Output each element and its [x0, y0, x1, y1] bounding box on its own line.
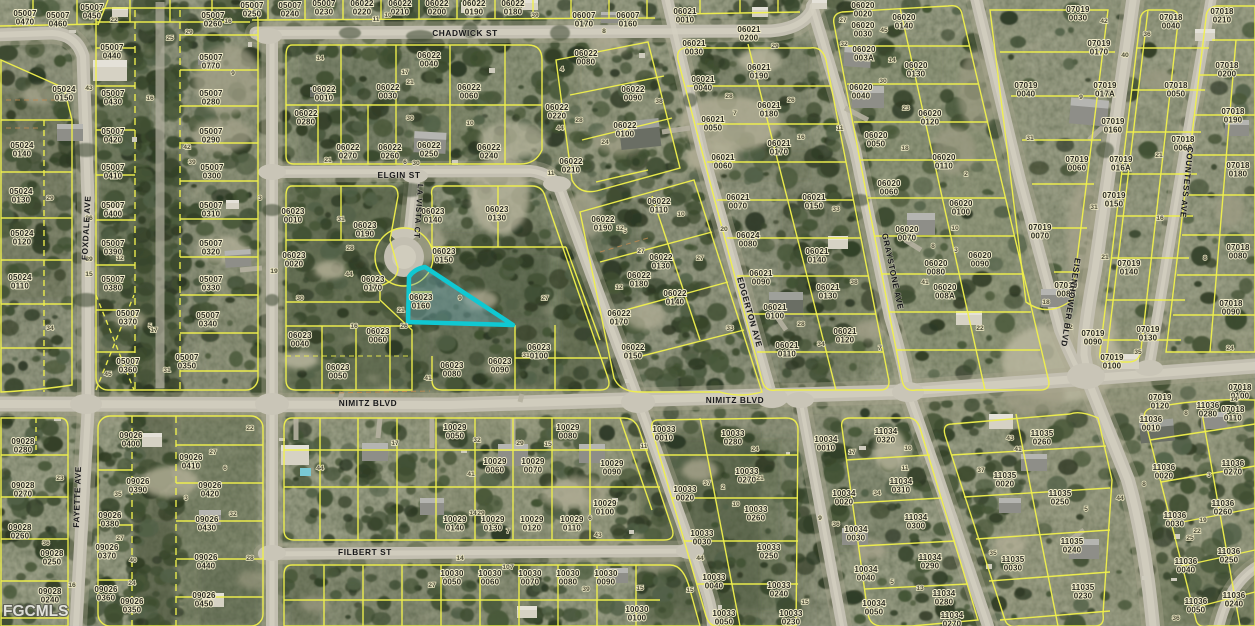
svg-text:27: 27 [541, 295, 549, 302]
svg-text:070180040: 070180040 [1159, 13, 1183, 31]
svg-text:24: 24 [1226, 345, 1234, 352]
svg-text:060220220: 060220220 [350, 0, 374, 17]
svg-text:060210070: 060210070 [726, 193, 750, 211]
svg-text:11: 11 [372, 16, 379, 23]
svg-text:070190160: 070190160 [1101, 117, 1125, 135]
svg-text:100290050: 100290050 [443, 423, 467, 441]
svg-text:25: 25 [166, 35, 174, 42]
svg-text:110350030: 110350030 [1002, 555, 1025, 573]
svg-text:28: 28 [797, 321, 805, 328]
svg-text:100330020: 100330020 [673, 485, 697, 503]
svg-text:06020008A: 06020008A [933, 283, 957, 301]
svg-text:3: 3 [954, 247, 958, 254]
svg-text:070180190: 070180190 [1221, 107, 1245, 125]
svg-text:41: 41 [424, 375, 432, 382]
svg-text:35: 35 [989, 550, 997, 557]
svg-text:090260420: 090260420 [198, 481, 222, 499]
svg-text:060220200: 060220200 [425, 0, 449, 17]
svg-text:40: 40 [129, 557, 137, 564]
svg-text:9: 9 [818, 515, 822, 522]
svg-text:060220180: 060220180 [501, 0, 525, 17]
svg-text:060220250: 060220250 [417, 141, 441, 159]
svg-text:050070430: 050070430 [101, 89, 125, 107]
svg-text:060230170: 060230170 [361, 275, 385, 293]
svg-text:41: 41 [467, 471, 475, 478]
svg-text:34: 34 [873, 490, 881, 497]
svg-text:28: 28 [725, 93, 733, 100]
svg-text:090260430: 090260430 [195, 515, 219, 533]
svg-text:060200140: 060200140 [892, 13, 916, 31]
svg-text:41: 41 [921, 279, 929, 286]
svg-text:6: 6 [223, 465, 227, 472]
svg-text:070190140: 070190140 [1117, 259, 1141, 277]
svg-text:100290060: 100290060 [483, 457, 507, 475]
svg-text:14: 14 [316, 55, 324, 62]
svg-text:050070230: 050070230 [312, 0, 336, 17]
svg-text:15: 15 [85, 271, 93, 278]
svg-text:060200090: 060200090 [968, 251, 992, 269]
svg-text:44: 44 [345, 271, 353, 278]
svg-text:4: 4 [560, 66, 564, 73]
svg-text:060210200: 060210200 [737, 25, 761, 43]
svg-text:7: 7 [506, 528, 510, 535]
svg-text:29: 29 [477, 510, 485, 517]
svg-text:110360030: 110360030 [1164, 511, 1187, 529]
svg-text:060220030: 060220030 [376, 83, 400, 101]
svg-text:5: 5 [890, 579, 894, 586]
svg-text:10: 10 [904, 445, 912, 452]
svg-text:2: 2 [721, 484, 725, 491]
svg-text:45: 45 [880, 27, 888, 34]
svg-text:22: 22 [976, 325, 984, 332]
svg-text:100290100: 100290100 [593, 499, 617, 517]
svg-text:060220270: 060220270 [336, 143, 360, 161]
svg-text:9: 9 [1079, 94, 1083, 101]
svg-text:060220190: 060220190 [462, 0, 486, 17]
svg-text:17: 17 [848, 449, 856, 456]
svg-text:41: 41 [1014, 446, 1022, 453]
svg-text:11: 11 [640, 443, 647, 450]
svg-text:100330280: 100330280 [721, 429, 745, 447]
svg-text:110350230: 110350230 [1072, 583, 1095, 601]
svg-text:39: 39 [531, 12, 539, 19]
svg-text:35: 35 [1134, 349, 1142, 356]
svg-text:110340310: 110340310 [890, 477, 913, 495]
svg-text:110360240: 110360240 [1223, 591, 1246, 609]
svg-text:14: 14 [888, 57, 896, 64]
svg-text:100330040: 100330040 [702, 573, 726, 591]
svg-text:100330240: 100330240 [767, 581, 791, 599]
svg-text:070180080: 070180080 [1226, 243, 1250, 261]
svg-text:060220210: 060220210 [388, 0, 412, 17]
svg-text:5: 5 [1084, 506, 1088, 513]
svg-text:15: 15 [801, 599, 809, 606]
svg-text:22: 22 [110, 17, 118, 24]
svg-text:21: 21 [397, 307, 405, 314]
svg-text:050070250: 050070250 [240, 1, 264, 19]
svg-text:090260450: 090260450 [192, 591, 216, 609]
svg-text:31: 31 [522, 352, 530, 359]
svg-text:100290130: 100290130 [481, 515, 505, 533]
svg-text:060240080: 060240080 [736, 231, 760, 249]
svg-text:050070300: 050070300 [200, 163, 224, 181]
svg-text:36: 36 [1172, 615, 1180, 622]
svg-text:NIMITZ BLVD: NIMITZ BLVD [339, 398, 398, 408]
svg-text:8: 8 [1142, 481, 1146, 488]
svg-text:050070310: 050070310 [199, 201, 223, 219]
svg-text:070180200: 070180200 [1215, 61, 1239, 79]
svg-text:44: 44 [316, 465, 324, 472]
svg-text:11: 11 [901, 465, 908, 472]
svg-text:8: 8 [1203, 255, 1207, 262]
svg-text:050070440: 050070440 [100, 43, 124, 61]
svg-text:33: 33 [832, 206, 840, 213]
svg-text:110360260: 110360260 [1212, 499, 1235, 517]
svg-text:40: 40 [1121, 52, 1129, 59]
svg-text:22: 22 [246, 425, 254, 432]
svg-text:110360040: 110360040 [1175, 557, 1198, 575]
svg-text:070190100: 070190100 [1100, 353, 1124, 371]
svg-text:12: 12 [616, 225, 624, 232]
svg-text:060200020: 060200020 [851, 1, 875, 19]
svg-text:060220010: 060220010 [312, 85, 336, 103]
svg-text:050070410: 050070410 [101, 163, 125, 181]
svg-text:060200050: 060200050 [864, 131, 888, 149]
svg-text:060230020: 060230020 [282, 251, 306, 269]
svg-text:10: 10 [677, 211, 685, 218]
svg-text:060210010: 060210010 [673, 7, 697, 25]
svg-text:10: 10 [466, 120, 474, 127]
svg-text:27: 27 [116, 535, 124, 542]
svg-text:15: 15 [544, 441, 552, 448]
svg-text:060210170: 060210170 [767, 139, 791, 157]
svg-text:FILBERT ST: FILBERT ST [338, 547, 392, 557]
svg-text:9: 9 [458, 295, 462, 302]
svg-text:39: 39 [582, 586, 590, 593]
svg-text:050070400: 050070400 [101, 201, 125, 219]
svg-text:070190150: 070190150 [1102, 191, 1126, 209]
svg-text:070180110: 070180110 [1221, 405, 1245, 423]
svg-text:110350250: 110350250 [1049, 489, 1072, 507]
svg-text:100330260: 100330260 [744, 505, 768, 523]
svg-text:110340300: 110340300 [905, 513, 928, 531]
svg-text:18: 18 [901, 145, 909, 152]
svg-text:060200100: 060200100 [949, 199, 973, 217]
svg-text:060220210: 060220210 [559, 157, 583, 175]
svg-text:29: 29 [516, 440, 524, 447]
svg-text:22: 22 [1193, 528, 1201, 535]
svg-text:100340030: 100340030 [844, 525, 868, 543]
svg-text:28: 28 [575, 117, 583, 124]
svg-text:21: 21 [406, 79, 414, 86]
svg-text:090260350: 090260350 [120, 597, 144, 615]
svg-text:44: 44 [696, 555, 704, 562]
svg-text:14: 14 [1230, 396, 1238, 403]
svg-text:110340290: 110340290 [919, 553, 942, 571]
svg-text:050070320: 050070320 [199, 239, 223, 257]
svg-text:10: 10 [384, 12, 392, 19]
svg-text:42: 42 [1100, 18, 1108, 25]
svg-text:100330230: 100330230 [779, 609, 803, 626]
svg-text:060220100: 060220100 [613, 121, 637, 139]
svg-text:060220130: 060220130 [649, 253, 673, 271]
svg-text:060210060: 060210060 [711, 153, 735, 171]
svg-text:17: 17 [150, 327, 158, 334]
svg-text:060220140: 060220140 [663, 289, 687, 307]
svg-text:060210150: 060210150 [802, 193, 826, 211]
svg-text:060230040: 060230040 [288, 331, 312, 349]
svg-text:070180210: 070180210 [1210, 7, 1234, 25]
svg-text:30: 30 [412, 160, 420, 167]
svg-text:060230140: 060230140 [421, 207, 445, 225]
svg-text:050070770: 050070770 [199, 53, 223, 71]
svg-text:7: 7 [733, 110, 737, 117]
svg-text:100300060: 100300060 [478, 569, 502, 587]
svg-text:20: 20 [720, 226, 728, 233]
svg-text:100300050: 100300050 [440, 569, 464, 587]
svg-text:060210090: 060210090 [749, 269, 773, 287]
svg-text:32: 32 [840, 41, 848, 48]
svg-text:110340270: 110340270 [941, 611, 964, 626]
svg-text:27: 27 [209, 449, 217, 456]
svg-text:110360270: 110360270 [1222, 459, 1245, 477]
svg-text:060210180: 060210180 [757, 101, 781, 119]
svg-text:29: 29 [46, 195, 54, 202]
svg-text:070180180: 070180180 [1226, 161, 1250, 179]
svg-text:38: 38 [850, 279, 858, 286]
svg-text:39: 39 [188, 159, 196, 166]
svg-text:060210100: 060210100 [763, 303, 787, 321]
svg-text:070180090: 070180090 [1219, 299, 1243, 317]
svg-text:12: 12 [116, 255, 124, 262]
svg-text:24: 24 [128, 580, 136, 587]
svg-text:11: 11 [547, 170, 554, 177]
svg-text:23: 23 [56, 475, 64, 482]
svg-text:070190130: 070190130 [1136, 325, 1160, 343]
svg-text:36: 36 [832, 521, 840, 528]
svg-text:21: 21 [1155, 152, 1163, 159]
svg-text:110350020: 110350020 [994, 471, 1017, 489]
svg-text:07019016A: 07019016A [1109, 155, 1133, 173]
svg-text:15: 15 [636, 585, 644, 592]
svg-text:090260440: 090260440 [194, 553, 218, 571]
svg-text:050240120: 050240120 [10, 229, 34, 247]
svg-text:090280270: 090280270 [11, 481, 35, 499]
svg-text:070180050: 070180050 [1164, 81, 1188, 99]
svg-text:070190040: 070190040 [1014, 81, 1038, 99]
svg-text:16: 16 [146, 95, 154, 102]
svg-text:060210030: 060210030 [682, 39, 706, 57]
svg-text:100300080: 100300080 [556, 569, 580, 587]
svg-text:43: 43 [594, 532, 602, 539]
svg-text:6: 6 [403, 159, 407, 166]
svg-text:060230190: 060230190 [353, 221, 377, 239]
svg-text:19: 19 [270, 268, 278, 275]
svg-text:100290080: 100290080 [556, 423, 580, 441]
svg-text:060210050: 060210050 [701, 115, 725, 133]
svg-text:050240140: 050240140 [10, 141, 34, 159]
svg-text:070190170: 070190170 [1087, 39, 1111, 57]
svg-text:31: 31 [1026, 135, 1034, 142]
svg-text:050070340: 050070340 [196, 311, 220, 329]
svg-text:060220080: 060220080 [574, 49, 598, 67]
svg-text:060220190: 060220190 [591, 215, 615, 233]
svg-text:31: 31 [163, 367, 171, 374]
svg-text:26: 26 [787, 97, 795, 104]
svg-text:060200040: 060200040 [849, 83, 873, 101]
svg-text:21: 21 [756, 475, 764, 482]
svg-text:050070470: 050070470 [13, 9, 37, 27]
svg-text:16: 16 [1156, 215, 1164, 222]
svg-text:110350240: 110350240 [1061, 537, 1084, 555]
svg-text:060230150: 060230150 [432, 247, 456, 265]
svg-text:100290070: 100290070 [521, 457, 545, 475]
svg-text:090260360: 090260360 [94, 585, 118, 603]
svg-text:30: 30 [296, 295, 304, 302]
svg-text:050070240: 050070240 [278, 1, 302, 19]
svg-text:060200110: 060200110 [932, 153, 956, 171]
svg-text:100290140: 100290140 [443, 515, 467, 533]
svg-text:37: 37 [977, 467, 985, 474]
svg-text:090260410: 090260410 [179, 453, 203, 471]
svg-text:110360250: 110360250 [1218, 547, 1241, 565]
svg-text:27: 27 [637, 248, 645, 255]
svg-text:060220280: 060220280 [294, 109, 318, 127]
svg-text:100330050: 100330050 [712, 609, 736, 626]
svg-text:060200130: 060200130 [904, 61, 928, 79]
svg-text:30: 30 [406, 115, 414, 122]
svg-text:050070380: 050070380 [101, 275, 125, 293]
svg-text:43: 43 [1006, 435, 1014, 442]
svg-text:43: 43 [85, 85, 93, 92]
svg-text:060220110: 060220110 [647, 197, 671, 215]
svg-text:060220150: 060220150 [621, 343, 645, 361]
svg-text:32: 32 [473, 437, 481, 444]
svg-text:060220180: 060220180 [627, 271, 651, 289]
svg-text:090260390: 090260390 [126, 477, 150, 495]
svg-text:060230160: 060230160 [409, 293, 433, 311]
svg-text:100300090: 100300090 [594, 569, 618, 587]
svg-text:18: 18 [1042, 299, 1050, 306]
svg-text:31: 31 [1090, 204, 1098, 211]
svg-text:100290110: 100290110 [560, 515, 584, 533]
svg-text:050070290: 050070290 [199, 127, 223, 145]
svg-text:050070390: 050070390 [101, 239, 125, 257]
svg-text:050240110: 050240110 [8, 273, 32, 291]
svg-text:10: 10 [732, 501, 740, 508]
svg-text:090260370: 090260370 [95, 543, 119, 561]
svg-text:17: 17 [391, 440, 399, 447]
svg-text:060070170: 060070170 [572, 11, 596, 29]
svg-text:060220260: 060220260 [378, 143, 402, 161]
svg-text:100340050: 100340050 [862, 599, 886, 617]
svg-text:090260380: 090260380 [98, 511, 122, 529]
svg-text:06020003A: 06020003A [852, 45, 876, 63]
svg-text:8: 8 [931, 243, 935, 250]
svg-text:3: 3 [258, 195, 262, 202]
svg-text:090260400: 090260400 [119, 431, 143, 449]
svg-text:7: 7 [510, 564, 514, 571]
svg-text:10: 10 [502, 564, 510, 571]
svg-text:060210190: 060210190 [747, 63, 771, 81]
svg-text:060220240: 060220240 [477, 143, 501, 161]
svg-text:110340280: 110340280 [933, 589, 956, 607]
svg-text:ELGIN ST: ELGIN ST [377, 170, 420, 180]
svg-text:100290090: 100290090 [600, 459, 624, 477]
svg-text:44: 44 [1116, 495, 1124, 502]
svg-text:060220220: 060220220 [545, 103, 569, 121]
svg-text:32: 32 [229, 511, 237, 518]
svg-text:27: 27 [428, 582, 436, 589]
svg-text:070190060: 070190060 [1065, 155, 1089, 173]
svg-text:100300100: 100300100 [625, 605, 649, 623]
svg-text:100330010: 100330010 [652, 425, 676, 443]
svg-text:16: 16 [350, 323, 358, 330]
svg-text:090280280: 090280280 [11, 437, 35, 455]
svg-text:060230080: 060230080 [440, 361, 464, 379]
svg-text:060210130: 060210130 [816, 283, 840, 301]
svg-text:050070350: 050070350 [175, 353, 199, 371]
svg-text:100330250: 100330250 [757, 543, 781, 561]
svg-text:060210110: 060210110 [775, 341, 799, 359]
svg-text:110360020: 110360020 [1153, 463, 1176, 481]
svg-text:8: 8 [602, 28, 606, 35]
svg-text:060210040: 060210040 [691, 75, 715, 93]
svg-text:3: 3 [184, 495, 188, 502]
svg-text:10: 10 [951, 225, 959, 232]
svg-text:33: 33 [726, 325, 734, 332]
svg-text:090280250: 090280250 [40, 549, 64, 567]
svg-text:050070260: 050070260 [201, 11, 225, 29]
svg-text:100340010: 100340010 [814, 435, 838, 453]
svg-text:060230090: 060230090 [488, 357, 512, 375]
svg-text:050070330: 050070330 [199, 275, 223, 293]
svg-text:37: 37 [703, 480, 711, 487]
svg-text:070190070: 070190070 [1028, 223, 1052, 241]
svg-text:110350260: 110350260 [1031, 429, 1054, 447]
svg-text:38: 38 [655, 98, 663, 105]
svg-text:060220040: 060220040 [417, 51, 441, 69]
svg-text:060200070: 060200070 [895, 225, 919, 243]
svg-text:21: 21 [1101, 254, 1109, 261]
svg-text:24: 24 [601, 139, 609, 146]
svg-text:060230060: 060230060 [366, 327, 390, 345]
svg-text:7: 7 [878, 345, 882, 352]
svg-text:060220060: 060220060 [457, 83, 481, 101]
svg-text:12: 12 [615, 284, 623, 291]
svg-text:27: 27 [839, 17, 847, 24]
svg-text:050070280: 050070280 [199, 89, 223, 107]
svg-text:36: 36 [42, 540, 50, 547]
svg-text:060220090: 060220090 [621, 85, 645, 103]
svg-text:17: 17 [401, 69, 409, 76]
svg-text:060220170: 060220170 [607, 309, 631, 327]
svg-text:060230100: 060230100 [527, 343, 551, 361]
svg-text:3: 3 [1207, 472, 1211, 479]
svg-text:070190030: 070190030 [1066, 5, 1090, 23]
svg-text:070190120: 070190120 [1148, 393, 1172, 411]
svg-text:100340020: 100340020 [832, 489, 856, 507]
svg-text:28: 28 [246, 555, 254, 562]
svg-text:29: 29 [185, 29, 193, 36]
svg-text:29: 29 [771, 43, 779, 50]
svg-text:050070460: 050070460 [46, 11, 70, 29]
svg-text:44: 44 [556, 125, 564, 132]
svg-text:CHADWICK ST: CHADWICK ST [432, 28, 498, 38]
svg-text:15: 15 [686, 587, 694, 594]
svg-text:14: 14 [469, 510, 477, 517]
svg-text:060200120: 060200120 [918, 109, 942, 127]
